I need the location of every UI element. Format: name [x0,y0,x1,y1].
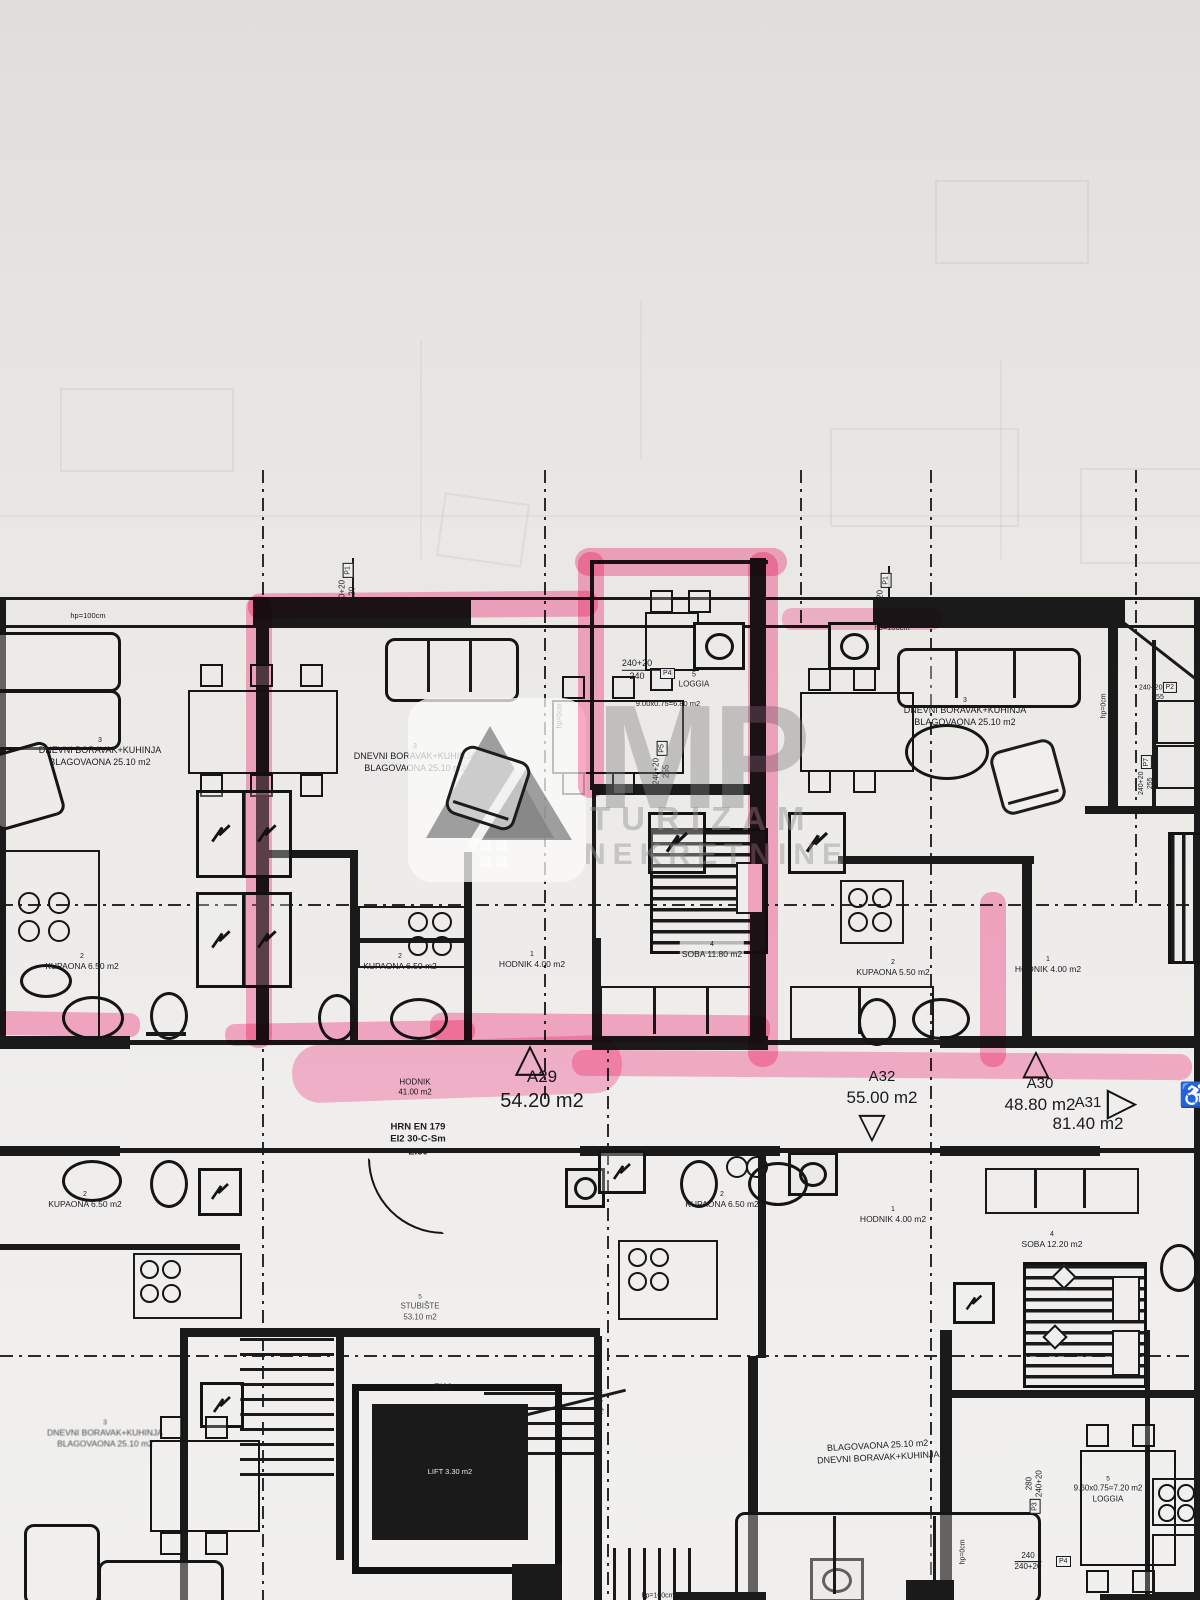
room-label-kupaona-ne: 2 KUPAONA 5.50 m2 [856,958,930,978]
stove-burner [48,920,70,942]
highlight-stroke[interactable] [980,892,1006,1067]
chair [1132,1424,1155,1447]
stove-burner [162,1284,181,1303]
room-label-loggia-se: 5 9.60x0.75=7.20 m2 LOGGIA [1074,1475,1143,1504]
sofa [24,1524,100,1600]
stove-burner [18,892,40,914]
room-label-soba-se: 4 SOBA 12.20 m2 [1022,1230,1083,1250]
highlight-stroke[interactable] [578,552,604,798]
lightning-icon [210,1393,234,1417]
axis-line [1135,470,1137,908]
column-pillar [693,622,745,670]
chair [650,590,673,613]
axis-line [800,470,802,628]
wall-segment [838,856,1034,864]
wall-segment [180,1328,600,1337]
room-label-living-nw: 3 DNEVNI BORAVAK+KUHINJA BLAGOVAONA 25.1… [39,736,161,768]
wall-segment [336,1336,344,1560]
fire-door-label: EI60 [434,1382,453,1394]
electrical-box [598,1150,646,1194]
chair [205,1416,228,1439]
appliance [1156,745,1200,789]
highlight-stroke[interactable] [782,608,942,630]
chair [300,664,323,687]
ghost-line [830,428,1019,527]
sofa [385,638,519,702]
highlight-stroke[interactable] [248,590,598,619]
stove-burner [140,1260,159,1279]
stove-burner [48,892,70,914]
ghost-line [420,340,422,560]
bed-pillow [1112,1276,1140,1322]
dim-label-p4-bottom: 240 240+20 [1015,1551,1042,1573]
highlight-stroke[interactable] [246,596,272,1048]
wall-segment [676,1592,766,1600]
bed-pillow [1112,1330,1140,1376]
room-label-hodnik-mid: 1 HODNIK 4.00 m2 [499,950,565,970]
ghost-line [1000,360,1002,560]
chair [160,1532,183,1555]
toilet [150,1160,188,1208]
sofa-divider [833,1516,836,1594]
level-arrow-right-icon: ▷ [1107,1082,1138,1122]
parapet-height-label: hp=0cm [1099,693,1108,718]
sofa [98,1560,224,1600]
sofa [735,1512,1041,1600]
lightning-icon [208,821,234,847]
stove-burner [1158,1484,1176,1502]
room-label-soba-cut: SOBA 1 [1194,853,1200,863]
coffee-table [905,724,989,780]
stove-burner [162,1260,181,1279]
stove-burner [848,888,868,908]
room-label-living-se: BLAGOVAONA 25.10 m2 DNEVNI BORAVAK+KUHIN… [816,1437,940,1467]
electrical-box [198,1168,242,1216]
ghost-line [0,515,1200,517]
stove-burner [650,1248,669,1267]
watermark-window [496,856,507,867]
toilet [1160,1244,1198,1292]
chair [205,1532,228,1555]
room-label-kupaona-sc: 2 KUPAONA 6.50 m2 [685,1190,759,1210]
wall-segment [1108,628,1118,810]
wall-segment [952,1390,1200,1398]
stove-burner [628,1248,647,1267]
wall-segment [940,1146,1100,1156]
room-label-hodnik-ne: 1 HODNIK 4.00 m2 [1015,955,1081,975]
ghost-line [436,492,530,567]
sofa-divider [427,640,430,692]
fire-rating-label: HRN EN 179 EI2 30-C-Sm EI30 [390,1121,445,1158]
room-label-kupaona-mid: 2 KUPAONA 6.50 m2 [363,952,437,972]
lightning-icon [208,1180,232,1204]
loggia-table [645,612,699,671]
chair [160,1416,183,1439]
watermark-window [480,856,491,867]
ghost-line [935,180,1089,264]
stove-burner [872,912,892,932]
highlight-stroke[interactable] [0,1011,140,1038]
ghost-line [640,300,642,460]
dining-table [150,1440,260,1532]
room-label-stubiste: 5 STUBIŠTE 53.10 m2 [400,1293,439,1322]
stove-burner [18,920,40,942]
wardrobe-unit [196,790,246,878]
closet [985,1168,1139,1214]
stove-burner [848,912,868,932]
watermark-window [480,840,491,851]
wall-segment [906,1580,954,1600]
parapet-height-label: hp=100cm [642,1591,675,1600]
sofa-divider [1013,650,1016,698]
chair [808,770,831,793]
wardrobe-unit [196,892,246,988]
watermark-line2: NEKRETNINE [584,840,849,870]
stove-burner [628,1272,647,1291]
room-label-living-sw: 3 DNEVNI BORAVAK+KUHINJA BLAGOVAONA 25.1… [47,1418,163,1449]
room-label-soba-a29: 4 SOBA 11.80 m2 [680,940,744,960]
dim-label-p3: P3 280240+20 [1025,1470,1046,1514]
stove-burner [1177,1504,1195,1522]
stove-burner [872,888,892,908]
sofa [0,632,121,692]
lightning-icon [610,1160,634,1184]
chair [1086,1424,1109,1447]
stove-burner [650,1272,669,1291]
elevator-label: LIFT 3.30 m2 [428,1467,472,1477]
parapet-height-label: hp=100cm [70,611,105,621]
chair [1086,1570,1109,1593]
wall-segment [940,1036,1200,1048]
ghost-line [60,388,234,472]
parapet-height-label: hp=0cm [596,1389,605,1414]
stove-burner [140,1284,159,1303]
highlight-stroke[interactable] [572,1050,1192,1080]
wall-segment [512,1564,562,1600]
room-label-kupaona-sw: 2 KUPAONA 6.50 m2 [48,1190,122,1210]
armchair [988,737,1069,818]
wall-segment [0,1146,120,1156]
wall-segment [1100,1594,1200,1600]
chair [853,770,876,793]
appliance [1156,700,1200,744]
chair [808,668,831,691]
door-swing [368,1158,444,1234]
highlight-stroke[interactable] [748,552,778,1067]
chair [200,664,223,687]
axis-line [0,904,1200,906]
dim-label-p7: 240+20255 P7 [1137,755,1155,795]
closet-divider [1083,1170,1086,1208]
watermark-line1: TURIZAM [590,802,815,835]
room-label-living-ne: 3 DNEVNI BORAVAK+KUHINJA BLAGOVAONA 25.1… [904,696,1026,728]
stove-burner [1158,1504,1176,1522]
wall-segment [1085,806,1200,814]
wheelchair-icon: ♿ [1179,1084,1200,1108]
watermark-window [496,840,507,851]
room-label-hodnik-se: 1 HODNIK 4.00 m2 [860,1205,926,1225]
wall-segment [0,1244,240,1250]
closet-divider [1034,1170,1037,1208]
room-label-kupaona-nw: 2 KUPAONA 6.50 m2 [45,952,119,972]
sofa-divider [955,650,958,698]
toilet [858,998,896,1046]
electrical-box [953,1282,995,1324]
appliance [1152,1534,1200,1594]
stove-burner [1177,1484,1195,1502]
floor-plan-page: △ △ ▽ ▷ ♿ 140+20120 P1 140+20120 P1 hp=1… [0,0,1200,1600]
kitchen-counter [840,880,904,944]
washer-drum [746,1156,768,1178]
highlight-stroke[interactable] [430,1013,770,1044]
fixture-line [146,1032,186,1036]
chair [688,590,711,613]
stove-burner [432,912,452,932]
axis-line [607,1040,609,1600]
stove-burner [408,912,428,932]
wall-segment [1022,858,1032,1040]
dining-table [800,692,914,772]
chair [300,774,323,797]
sofa-divider [469,640,472,692]
dim-label-p2: 240+20P2 255 [1139,682,1177,702]
dim-tag-p4: P4 [1056,1556,1071,1567]
room-label-kupaona-cut: KUPAON [1194,1229,1200,1240]
washer-drum [726,1156,748,1178]
bathroom-sink [912,998,970,1040]
lightning-icon [963,1292,985,1314]
lightning-icon [208,927,234,953]
bed [1168,832,1200,964]
chair [853,668,876,691]
parapet-height-label: hp=0cm [958,1539,967,1564]
level-arrow-down-icon: ▽ [858,1108,886,1144]
